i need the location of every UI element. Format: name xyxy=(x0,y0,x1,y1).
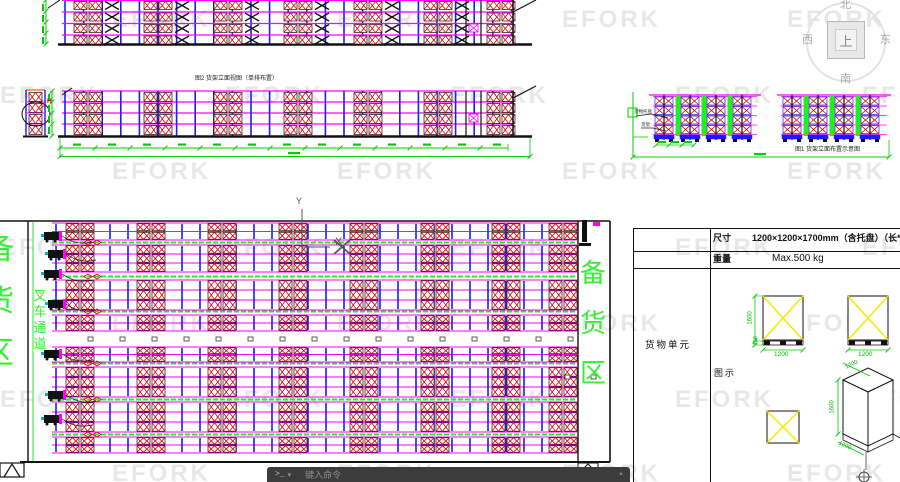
table-border-row2 xyxy=(633,268,900,269)
elevation-caption: 图2 货架立面视图（单排布置） xyxy=(195,76,278,82)
ucs-x-label: X xyxy=(335,237,342,248)
command-bar[interactable]: >_ ▾ 键入命令 ▲ xyxy=(267,467,630,482)
view-cube-face[interactable]: 上 xyxy=(827,21,865,59)
view-cube-north-label[interactable]: 北 xyxy=(840,0,851,12)
leader-label-pallet: 货物托盘 xyxy=(634,110,652,115)
command-prompt-icon: >_ xyxy=(275,470,285,479)
cad-application-window: EFORKEFORKEFORKEFORKEFORKEFORKEFORKEFORK… xyxy=(0,0,900,482)
table-dim-label: 尺寸 xyxy=(713,234,731,243)
dim-front-width-2: 1200 xyxy=(858,352,872,359)
table-border-row1 xyxy=(633,251,900,252)
view-cube-east-label[interactable]: 东 xyxy=(880,31,891,47)
side-view-caption: 图1 货架立面布置示意图 xyxy=(795,147,860,153)
plan-right-area-label: 备货区 xyxy=(579,248,607,398)
leader-label-rack: 货架 xyxy=(641,123,650,128)
detail-h-label: H xyxy=(47,99,52,106)
table-figure-label: 图示 xyxy=(714,369,736,378)
table-weight-value: Max.500 kg xyxy=(772,254,824,264)
table-weight-label: 重量 xyxy=(713,255,731,264)
table-dim-value: 1200×1200×1700mm（含托盘）（长*宽*高） xyxy=(752,234,900,243)
dim-front-width: 1200 xyxy=(774,352,788,359)
view-cube-west-label[interactable]: 西 xyxy=(802,31,813,47)
dim-iso-height: 1600 xyxy=(830,400,836,413)
plan-left-area-label: 备货区 xyxy=(0,224,14,380)
ucs-y-label: Y xyxy=(296,197,302,206)
table-border-left xyxy=(633,228,634,482)
plan-aisle-label: 叉车通道 xyxy=(33,288,47,352)
dim-front-height: 1600 xyxy=(748,311,754,324)
view-cube-south-label[interactable]: 南 xyxy=(840,70,851,86)
command-input[interactable]: 键入命令 xyxy=(305,468,341,481)
dim-pallet-height: 150 xyxy=(754,336,760,345)
view-cube[interactable]: 北 东 南 西 上 xyxy=(796,0,896,92)
chevron-down-icon[interactable]: ▾ xyxy=(288,471,292,479)
table-border-top xyxy=(633,228,900,229)
view-cube-top-face[interactable]: 上 xyxy=(835,29,857,51)
table-border-col xyxy=(710,228,711,482)
table-unit-label: 货物单元 xyxy=(645,341,691,351)
scroll-up-icon[interactable]: ▲ xyxy=(618,471,624,477)
